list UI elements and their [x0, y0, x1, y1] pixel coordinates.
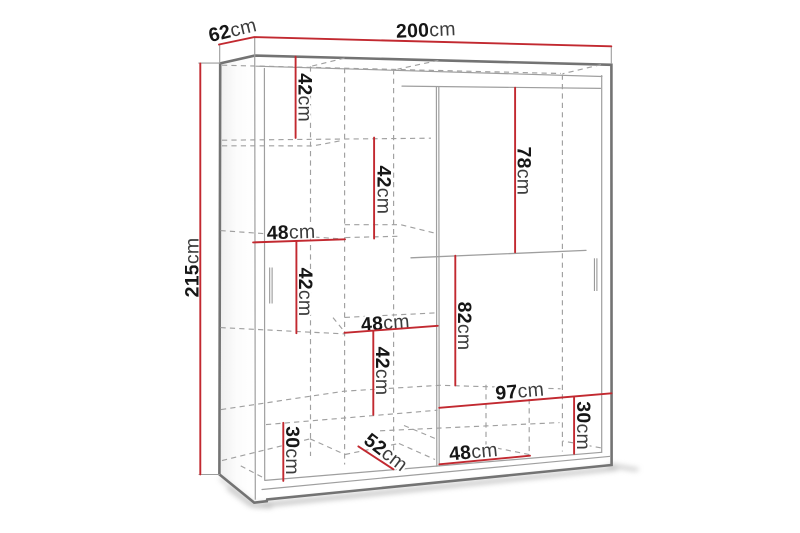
svg-text:30cm: 30cm	[281, 426, 303, 475]
svg-text:42cm: 42cm	[372, 166, 394, 215]
svg-text:82cm: 82cm	[453, 302, 475, 351]
svg-text:42cm: 42cm	[294, 268, 316, 317]
svg-text:200cm: 200cm	[395, 18, 456, 43]
svg-text:42cm: 42cm	[371, 347, 393, 396]
svg-text:48cm: 48cm	[360, 310, 410, 336]
svg-text:30cm: 30cm	[572, 401, 594, 450]
svg-text:42cm: 42cm	[293, 73, 315, 122]
